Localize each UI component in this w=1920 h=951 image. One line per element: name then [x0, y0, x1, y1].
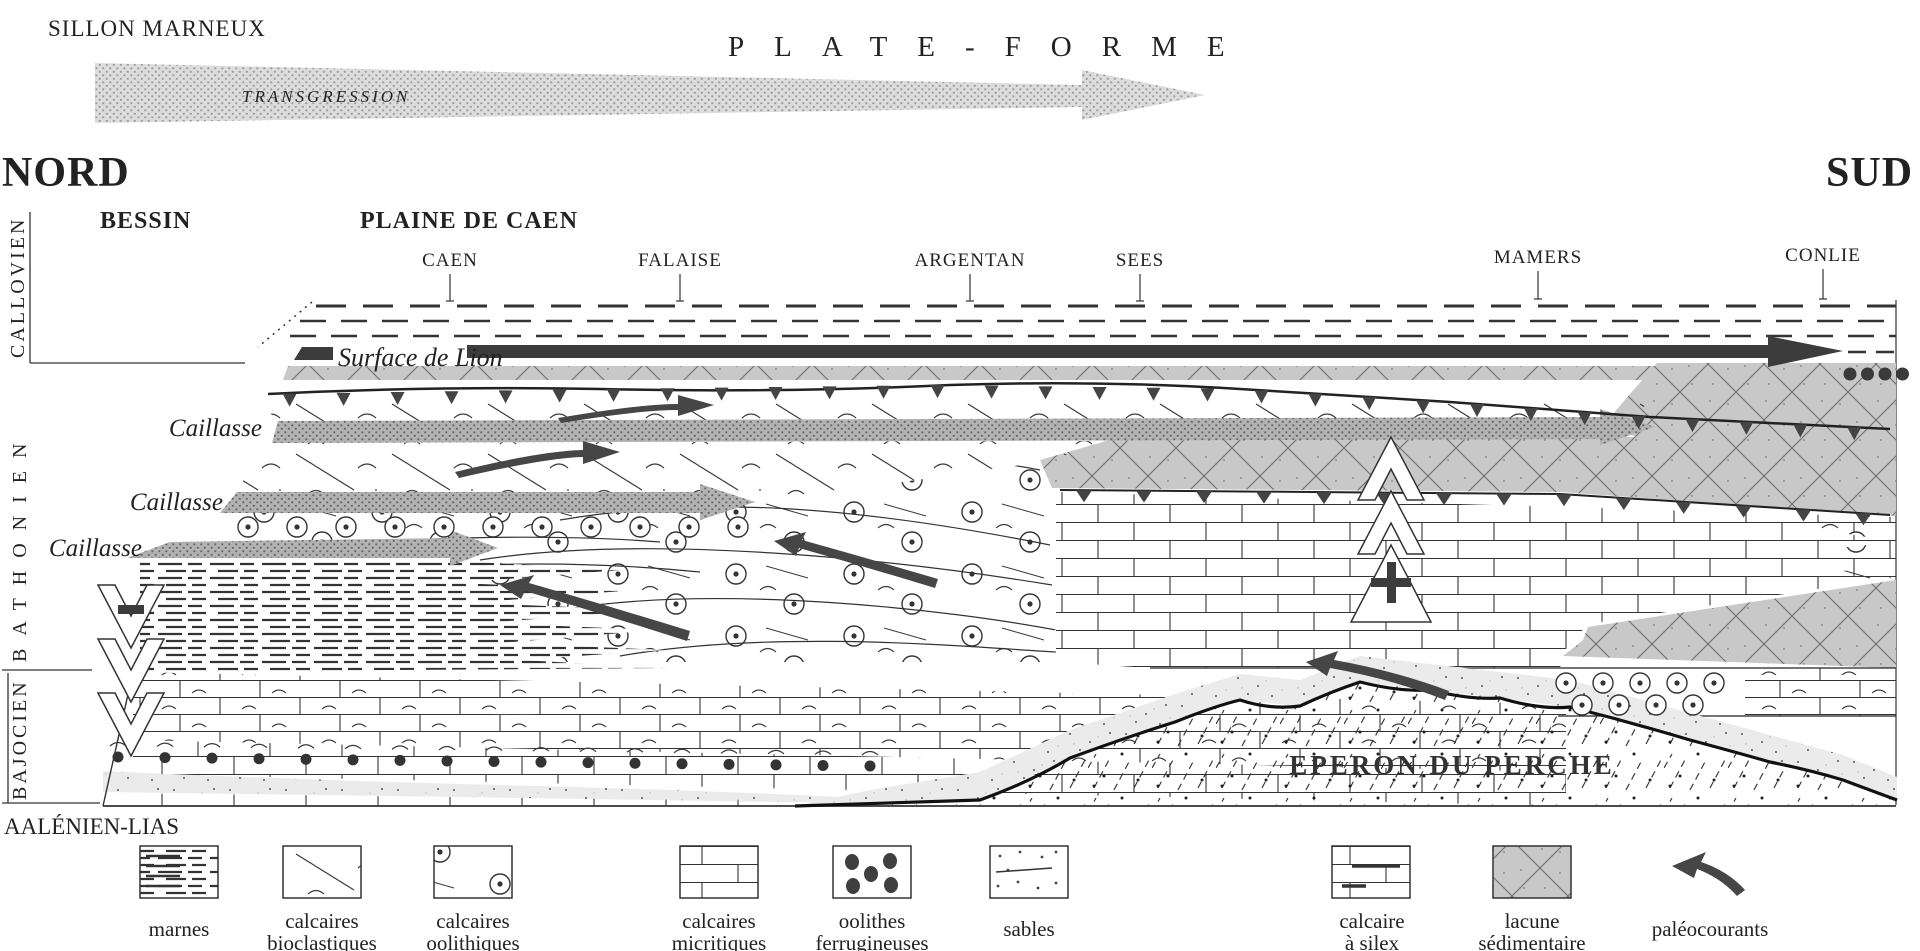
town-sees: SEES [1116, 250, 1164, 271]
legend-label-oolithiques-2: oolithiques [426, 931, 519, 951]
cross-section-diagram: SILLON MARNEUX PLATE-FORME TRANSGRESSION… [0, 0, 1920, 951]
legend-label-micritiques-1: calcaires [682, 909, 755, 933]
town-argentan: ARGENTAN [915, 250, 1026, 271]
legend: marnes calcaires bioclastiques calcaires… [140, 846, 1768, 951]
label-bessin: BESSIN [100, 208, 191, 234]
legend-label-marnes: marnes [149, 917, 210, 941]
stage-callovien: CALLOVIEN [7, 217, 29, 358]
label-caillasse-3: Caillasse [49, 535, 142, 562]
label-transgression: TRANSGRESSION [242, 87, 410, 106]
legend-swatch-silex [1332, 846, 1410, 898]
legend-swatch-bioclastiques [283, 846, 361, 898]
label-caillasse-1: Caillasse [169, 415, 262, 442]
legend-label-micritiques-2: micritiques [672, 931, 766, 951]
legend-label-silex-2: à silex [1345, 931, 1400, 951]
surface-de-lion [294, 336, 1843, 367]
paleocurrent-legend-arrow [1672, 852, 1745, 896]
label-surface-de-lion: Surface de Lion [338, 343, 503, 372]
label-plate-forme: PLATE-FORME [728, 31, 1255, 63]
bioclastic-strip-upper [258, 395, 1655, 421]
town-falaise: FALAISE [638, 250, 722, 271]
legend-label-silex-1: calcaire [1339, 909, 1404, 933]
right-brick-band [1745, 668, 1896, 716]
legend-swatch-marnes [140, 846, 218, 898]
label-plaine-de-caen: PLAINE DE CAEN [360, 208, 578, 234]
town-caen: CAEN [422, 250, 478, 271]
legend-swatch-oolithiques [434, 846, 512, 898]
surface-de-lion-tab [294, 347, 333, 360]
legend-label-ferrugineuses-1: oolithes [839, 909, 906, 933]
label-sud: SUD [1826, 150, 1913, 196]
town-ticks [446, 269, 1827, 301]
legend-label-bioclastiques-1: calcaires [285, 909, 358, 933]
legend-label-ferrugineuses-2: ferrugineuses [815, 931, 928, 951]
label-sillon-marneux: SILLON MARNEUX [48, 16, 266, 41]
surface-de-lion-bar [467, 336, 1843, 367]
town-labels: CAEN FALAISE ARGENTAN SEES MAMERS CONLIE [422, 245, 1861, 301]
top-annotations: SILLON MARNEUX PLATE-FORME TRANSGRESSION… [2, 16, 1913, 234]
legend-swatch-lacune [1493, 846, 1571, 898]
stage-bathonien: BATHONIEN [9, 431, 31, 662]
legend-label-bioclastiques-2: bioclastiques [267, 931, 377, 951]
legend-label-paleocourants: paléocourants [1652, 917, 1769, 941]
cross-section: EPERON DU PERCHE Caillasse Caillasse Cai… [49, 300, 1909, 806]
legend-label-sables: sables [1003, 917, 1054, 941]
legend-labels: marnes calcaires bioclastiques calcaires… [149, 909, 1769, 951]
label-caillasse-2: Caillasse [130, 489, 223, 516]
legend-label-oolithiques-1: calcaires [436, 909, 509, 933]
town-mamers: MAMERS [1494, 247, 1582, 268]
legend-swatch-micritiques [680, 846, 758, 898]
town-conlie: CONLIE [1785, 245, 1861, 266]
stage-bajocien: BAJOCIEN [9, 679, 31, 800]
legend-label-lacune-1: lacune [1505, 909, 1560, 933]
stage-aalenien-lias: AALÉNIEN-LIAS [4, 814, 179, 839]
label-eperon-du-perche: EPERON DU PERCHE [1289, 750, 1615, 780]
minus-symbol [118, 605, 144, 614]
legend-label-lacune-2: sédimentaire [1478, 931, 1585, 951]
label-nord: NORD [2, 150, 130, 196]
